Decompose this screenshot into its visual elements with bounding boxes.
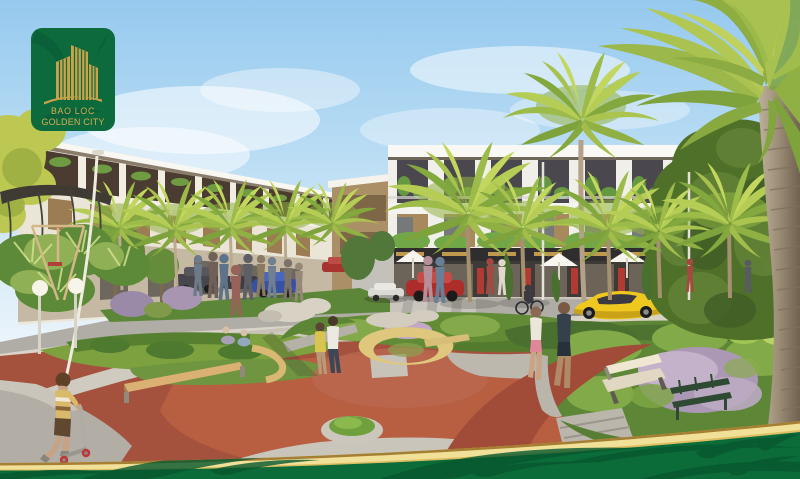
svg-text:GOLDEN CITY: GOLDEN CITY xyxy=(41,117,104,127)
svg-text:BAO LOC: BAO LOC xyxy=(51,106,95,116)
